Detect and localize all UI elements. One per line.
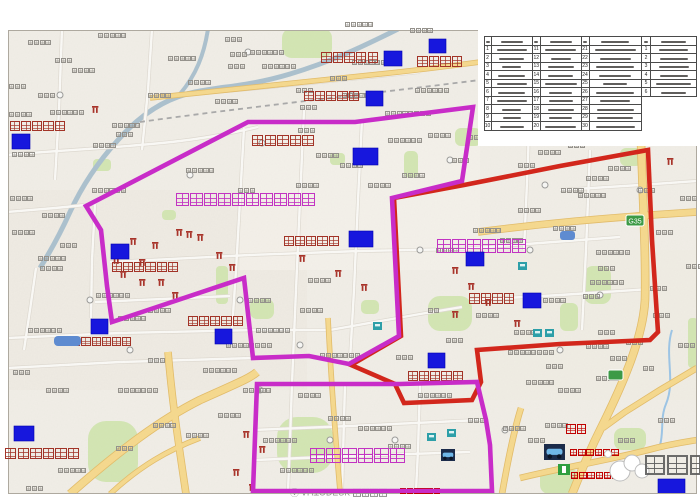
svg-text:G35: G35 <box>628 219 641 226</box>
